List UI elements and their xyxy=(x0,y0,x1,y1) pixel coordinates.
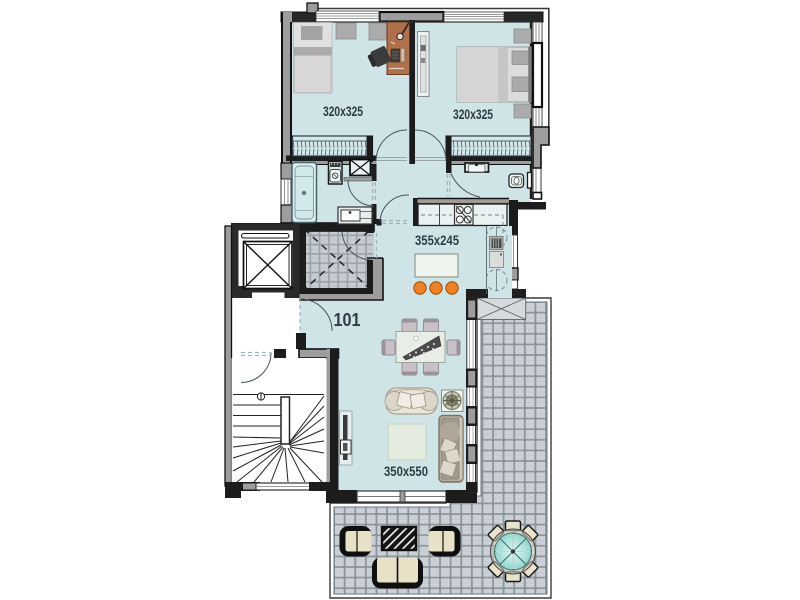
svg-text:320x325: 320x325 xyxy=(453,106,493,122)
svg-text:350x550: 350x550 xyxy=(384,463,428,479)
svg-text:101: 101 xyxy=(334,310,361,330)
svg-text:355x245: 355x245 xyxy=(415,232,459,248)
svg-text:320x325: 320x325 xyxy=(323,103,363,119)
